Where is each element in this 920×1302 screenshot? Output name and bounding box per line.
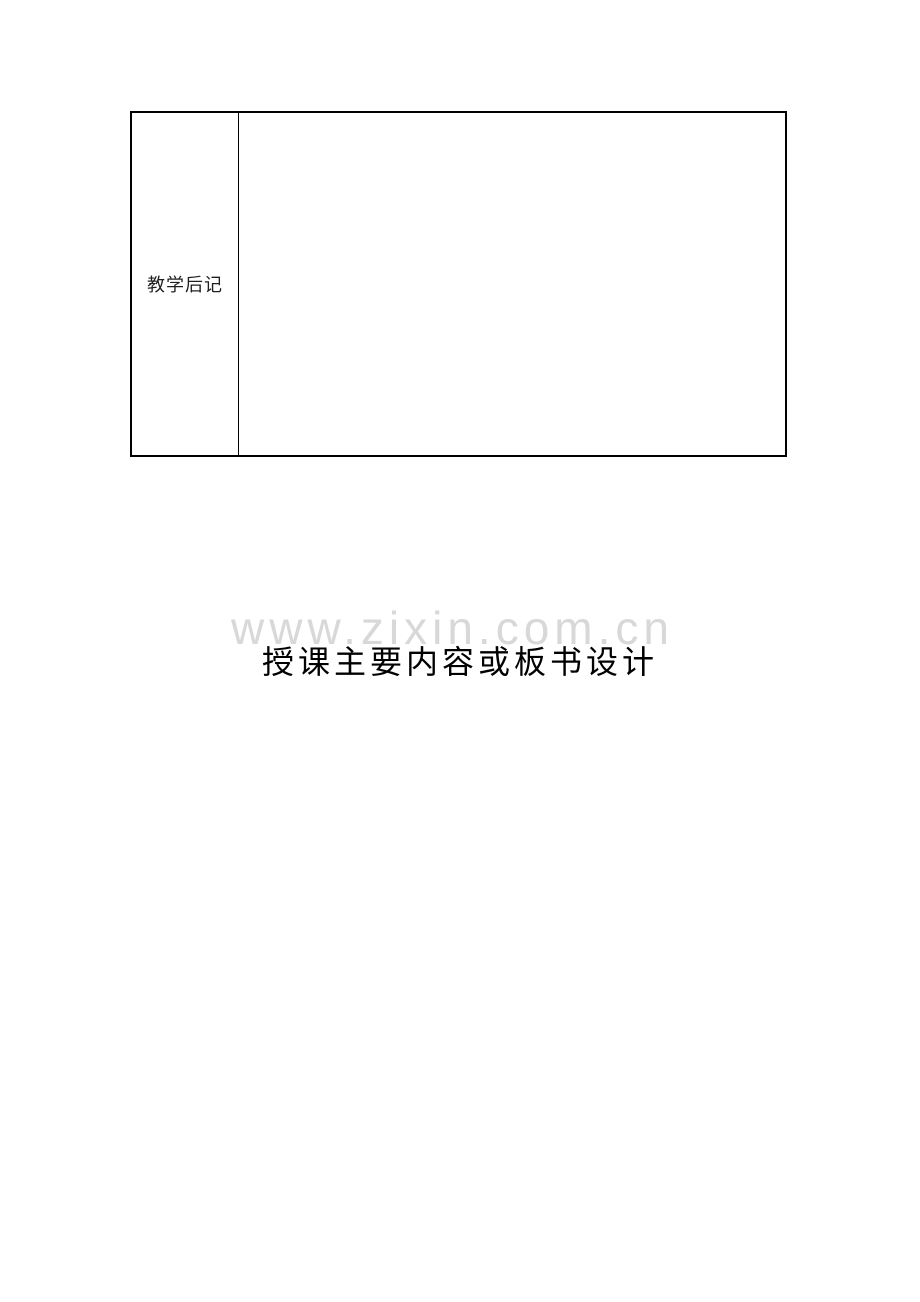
table-label-cell: 教学后记 — [132, 113, 239, 455]
section-heading: 授课主要内容或板书设计 — [0, 644, 920, 681]
document-page: 教学后记 www.zixin.com.cn 授课主要内容或板书设计 — [0, 0, 920, 1302]
teaching-notes-table: 教学后记 — [130, 111, 787, 457]
table-content-cell — [239, 113, 785, 455]
teaching-notes-label: 教学后记 — [147, 271, 223, 297]
